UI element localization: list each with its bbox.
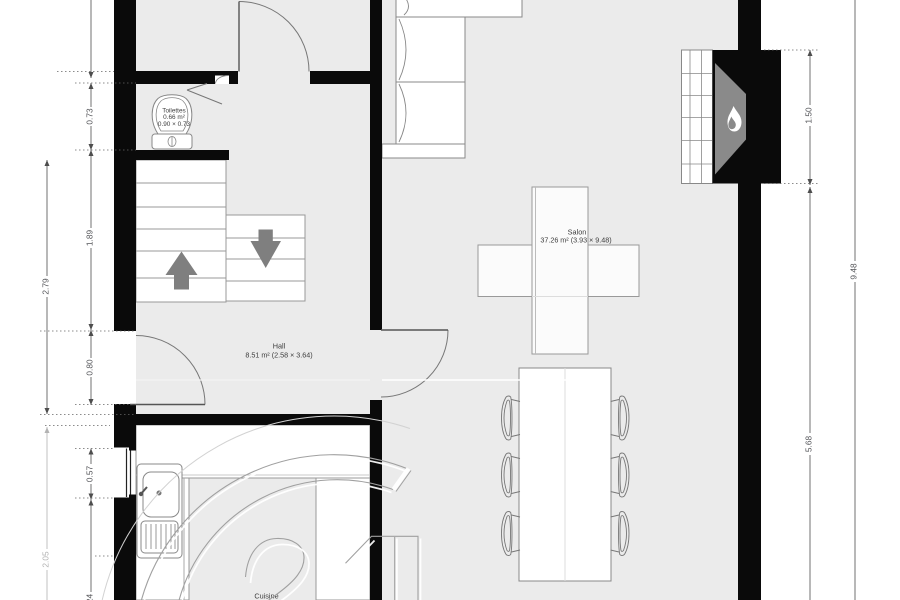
svg-text:0.73: 0.73 <box>85 108 95 125</box>
svg-text:1.50: 1.50 <box>804 107 814 124</box>
svg-text:0.80: 0.80 <box>85 359 95 376</box>
svg-text:0.90 × 0.73: 0.90 × 0.73 <box>158 121 191 128</box>
svg-text:9.48: 9.48 <box>849 263 859 280</box>
svg-text:0.57: 0.57 <box>85 466 95 483</box>
svg-text:1.24: 1.24 <box>85 594 95 600</box>
svg-text:2.05: 2.05 <box>41 551 51 568</box>
svg-text:2.79: 2.79 <box>41 278 51 295</box>
svg-text:1.89: 1.89 <box>85 230 95 247</box>
svg-text:Hall: Hall <box>273 342 286 351</box>
svg-text:37.26 m² (3.93 × 9.48): 37.26 m² (3.93 × 9.48) <box>540 236 611 245</box>
svg-text:8.51 m² (2.58 × 3.64): 8.51 m² (2.58 × 3.64) <box>245 351 312 360</box>
svg-text:5.68: 5.68 <box>804 436 814 453</box>
